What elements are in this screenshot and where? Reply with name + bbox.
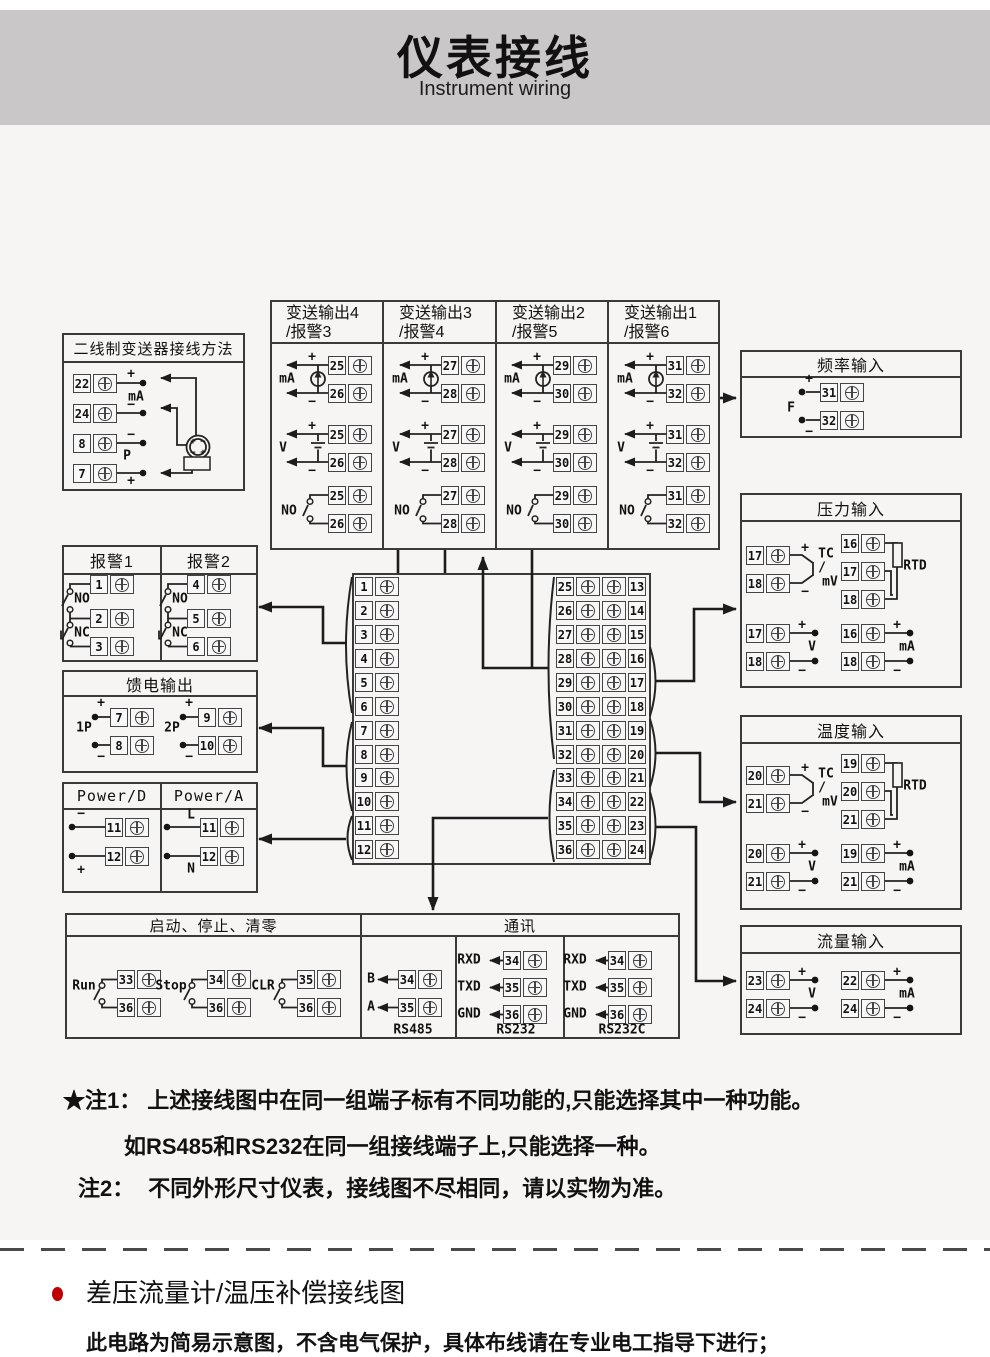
terminal-19: 19 <box>602 721 646 740</box>
label-B: B <box>367 972 375 987</box>
screw-icon <box>628 978 652 997</box>
screw-icon <box>686 453 710 472</box>
label-mA: mA <box>617 372 633 387</box>
terminal-35: 35 <box>398 998 442 1017</box>
terminal-3: 3 <box>355 625 399 644</box>
terminal-36: 36 <box>117 998 161 1017</box>
screw-icon <box>93 374 117 393</box>
label-+: + <box>893 965 901 980</box>
terminal-18: 18 <box>746 574 790 593</box>
terminal-7: 7 <box>110 708 154 727</box>
screw-icon <box>861 754 885 773</box>
terminal-11: 11 <box>105 818 149 837</box>
label-NO: NO <box>172 592 188 607</box>
screw-icon <box>348 514 372 533</box>
label-−: − <box>533 464 541 479</box>
label-−: − <box>893 1011 901 1026</box>
screw-icon <box>628 951 652 970</box>
terminal-32: 32 <box>666 384 710 403</box>
label-GND: GND <box>457 1007 480 1022</box>
note-2: 注2：不同外形尺寸仪表，接线图不尽相同，请以实物为准。 <box>78 1171 676 1203</box>
label-L: L <box>187 808 195 823</box>
screw-icon <box>602 577 626 596</box>
terminal-5: 5 <box>355 673 399 692</box>
terminal-24: 24 <box>841 999 885 1018</box>
label-V: V <box>617 441 625 456</box>
terminal-29: 29 <box>553 425 597 444</box>
screw-icon <box>207 609 231 628</box>
note-1-line2: 如RS485和RS232在同一组接线端子上,只能选择一种。 <box>124 1129 661 1161</box>
terminal-1: 1 <box>355 577 399 596</box>
label-+: + <box>421 419 429 434</box>
label-−: − <box>185 750 193 765</box>
screw-icon <box>375 649 399 668</box>
screw-icon <box>375 625 399 644</box>
terminal-2: 2 <box>355 601 399 620</box>
label-−: − <box>308 464 316 479</box>
label-NO: NO <box>394 504 410 519</box>
screw-icon <box>766 652 790 671</box>
label-mV: mV <box>822 575 838 590</box>
screw-icon <box>110 637 134 656</box>
label-+: + <box>798 965 806 980</box>
screw-icon <box>861 872 885 891</box>
note-1: ★注1：上述接线图中在同一组端子标有不同功能的,只能选择其中一种功能。 <box>63 1083 813 1115</box>
screw-icon <box>861 590 885 609</box>
terminal-12: 12 <box>355 840 399 859</box>
label-TC: TC <box>818 547 834 562</box>
dashed-divider <box>0 1248 990 1251</box>
label-RXD: RXD <box>563 953 586 968</box>
label-NO: NO <box>506 504 522 519</box>
page-subtitle: Instrument wiring <box>0 78 990 101</box>
screw-icon <box>628 1005 652 1024</box>
screw-icon <box>573 425 597 444</box>
screw-icon <box>130 708 154 727</box>
label-−: − <box>77 807 85 822</box>
terminal-16: 16 <box>841 624 885 643</box>
label-1P: 1P <box>76 721 92 736</box>
screw-icon <box>602 745 626 764</box>
label-−: − <box>798 664 806 679</box>
terminal-28: 28 <box>556 649 600 668</box>
screw-icon <box>840 411 864 430</box>
label-TXD: TXD <box>457 980 480 995</box>
red-bullet-icon <box>52 1287 63 1301</box>
screw-icon <box>576 745 600 764</box>
terminal-31: 31 <box>820 383 864 402</box>
terminal-30: 30 <box>553 514 597 533</box>
terminal-30: 30 <box>553 453 597 472</box>
label-GND: GND <box>563 1007 586 1022</box>
label-mA: mA <box>279 372 295 387</box>
terminal-22: 22 <box>73 374 117 393</box>
screw-icon <box>461 425 485 444</box>
terminal-8: 8 <box>355 745 399 764</box>
terminal-22: 22 <box>602 792 646 811</box>
label-Run: Run <box>72 979 95 994</box>
screw-icon <box>686 425 710 444</box>
terminal-7: 7 <box>73 464 117 483</box>
terminal-32: 32 <box>820 411 864 430</box>
screw-icon <box>766 624 790 643</box>
label-+: + <box>798 838 806 853</box>
screw-icon <box>375 697 399 716</box>
label-RTD: RTD <box>903 779 926 794</box>
terminal-9: 9 <box>355 768 399 787</box>
rtd-resistor-icon <box>893 763 902 787</box>
screw-icon <box>602 601 626 620</box>
terminal-24: 24 <box>746 999 790 1018</box>
content: 二线制变送器接线方法 变送输出4 /报警3 变送输出3 /报警4 变送输出2 /… <box>0 125 990 1240</box>
terminal-21: 21 <box>841 810 885 829</box>
label-−: − <box>801 805 809 820</box>
screw-icon <box>110 609 134 628</box>
label-−: − <box>801 585 809 600</box>
screw-icon <box>418 970 442 989</box>
screw-icon <box>576 816 600 835</box>
terminal-20: 20 <box>746 844 790 863</box>
screw-icon <box>686 356 710 375</box>
terminal-33: 33 <box>556 768 600 787</box>
label-P: P <box>123 449 131 464</box>
screw-icon <box>686 486 710 505</box>
terminal-20: 20 <box>841 782 885 801</box>
terminal-35: 35 <box>503 978 547 997</box>
terminal-35: 35 <box>608 978 652 997</box>
screw-icon <box>861 844 885 863</box>
label-+: + <box>646 350 654 365</box>
screw-icon <box>576 697 600 716</box>
section-body: 此电路为简易示意图，不含电气保护，具体布线请在专业电工指导下进行； <box>86 1327 779 1357</box>
label-NC: NC <box>74 626 90 641</box>
screw-icon <box>93 404 117 423</box>
terminal-18: 18 <box>746 652 790 671</box>
terminal-27: 27 <box>556 625 600 644</box>
label-/: / <box>818 561 826 576</box>
screw-icon <box>861 810 885 829</box>
terminal-28: 28 <box>441 384 485 403</box>
label-+: + <box>185 696 193 711</box>
terminal-25: 25 <box>328 486 372 505</box>
screw-icon <box>348 486 372 505</box>
label-−: − <box>533 395 541 410</box>
label-Stop: Stop <box>155 979 186 994</box>
terminal-31: 31 <box>666 356 710 375</box>
label-+: + <box>421 350 429 365</box>
label-mA: mA <box>504 372 520 387</box>
terminal-34: 34 <box>207 970 251 989</box>
note-1-prefix: ★注1： <box>63 1088 141 1113</box>
label-−: − <box>798 884 806 899</box>
terminal-27: 27 <box>441 425 485 444</box>
terminal-6: 6 <box>355 697 399 716</box>
diagram: 二线制变送器接线方法 变送输出4 /报警3 变送输出3 /报警4 变送输出2 /… <box>0 125 990 1065</box>
label-mA: mA <box>899 860 915 875</box>
label-+: + <box>805 372 813 387</box>
screw-icon <box>602 721 626 740</box>
terminal-21: 21 <box>746 794 790 813</box>
note-2-prefix: 注2： <box>78 1176 134 1201</box>
terminal-12: 12 <box>105 847 149 866</box>
screw-icon <box>576 625 600 644</box>
label-−: − <box>646 395 654 410</box>
screw-icon <box>220 847 244 866</box>
label-−: − <box>200 437 205 447</box>
terminal-21: 21 <box>746 872 790 891</box>
label-−: − <box>97 750 105 765</box>
screw-icon <box>461 486 485 505</box>
label-+: + <box>308 419 316 434</box>
label-F: F <box>787 401 795 416</box>
terminal-36: 36 <box>503 1005 547 1024</box>
screw-icon <box>602 673 626 692</box>
page-header: 仪表接线 Instrument wiring <box>0 10 990 125</box>
terminal-18: 18 <box>841 652 885 671</box>
terminal-32: 32 <box>666 453 710 472</box>
terminal-7: 7 <box>355 721 399 740</box>
terminal-25: 25 <box>328 425 372 444</box>
terminal-18: 18 <box>841 590 885 609</box>
label-−: − <box>127 398 135 413</box>
screw-icon <box>602 649 626 668</box>
screw-icon <box>686 384 710 403</box>
note-2-text: 不同外形尺寸仪表，接线图不尽相同，请以实物为准。 <box>148 1176 676 1201</box>
terminal-20: 20 <box>746 766 790 785</box>
connector-lines <box>398 550 532 668</box>
label-+: + <box>97 696 105 711</box>
screw-icon <box>93 434 117 453</box>
terminal-27: 27 <box>441 356 485 375</box>
label-+: + <box>533 350 541 365</box>
terminal-19: 19 <box>841 844 885 863</box>
screw-icon <box>576 840 600 859</box>
label-+: + <box>533 419 541 434</box>
terminal-31: 31 <box>666 425 710 444</box>
terminal-26: 26 <box>328 514 372 533</box>
terminal-36: 36 <box>297 998 341 1017</box>
screw-icon <box>861 624 885 643</box>
label-A: A <box>367 1000 375 1015</box>
screw-icon <box>461 356 485 375</box>
screw-icon <box>227 970 251 989</box>
terminal-13: 13 <box>602 577 646 596</box>
screw-icon <box>218 708 242 727</box>
label-mA: mA <box>392 372 408 387</box>
label-−: − <box>127 428 135 443</box>
terminal-24: 24 <box>602 840 646 859</box>
screw-icon <box>766 999 790 1018</box>
terminal-18: 18 <box>602 697 646 716</box>
screw-icon <box>375 745 399 764</box>
terminal-34: 34 <box>556 792 600 811</box>
label-−: − <box>421 464 429 479</box>
screw-icon <box>207 575 231 594</box>
screw-icon <box>418 998 442 1017</box>
terminal-26: 26 <box>328 453 372 472</box>
terminal-22: 22 <box>841 971 885 990</box>
terminal-10: 10 <box>198 736 242 755</box>
terminal-30: 30 <box>553 384 597 403</box>
screw-icon <box>602 697 626 716</box>
screw-icon <box>861 534 885 553</box>
screw-icon <box>861 562 885 581</box>
terminal-17: 17 <box>602 673 646 692</box>
terminal-31: 31 <box>666 486 710 505</box>
terminal-10: 10 <box>355 792 399 811</box>
terminal-36: 36 <box>207 998 251 1017</box>
terminal-4: 4 <box>355 649 399 668</box>
screw-icon <box>137 998 161 1017</box>
label-CLR: CLR <box>251 979 274 994</box>
terminal-29: 29 <box>553 356 597 375</box>
label-V: V <box>392 441 400 456</box>
label-mA: mA <box>899 987 915 1002</box>
label-V: V <box>808 640 816 655</box>
label-V: V <box>808 987 816 1002</box>
screw-icon <box>523 978 547 997</box>
terminal-12: 12 <box>200 847 244 866</box>
screw-icon <box>840 383 864 402</box>
terminal-27: 27 <box>441 486 485 505</box>
screw-icon <box>766 872 790 891</box>
label-RXD: RXD <box>457 953 480 968</box>
label-RS232: RS232 <box>496 1023 535 1038</box>
screw-icon <box>375 673 399 692</box>
screw-icon <box>93 464 117 483</box>
screw-icon <box>461 514 485 533</box>
terminal-36: 36 <box>556 840 600 859</box>
terminal-32: 32 <box>556 745 600 764</box>
screw-icon <box>375 768 399 787</box>
terminal-23: 23 <box>602 816 646 835</box>
label-mA: mA <box>899 640 915 655</box>
screw-icon <box>861 652 885 671</box>
label-+: + <box>190 437 195 447</box>
label-/: / <box>818 781 826 796</box>
screw-icon <box>861 971 885 990</box>
label-−: − <box>421 395 429 410</box>
screw-icon <box>573 356 597 375</box>
terminal-28: 28 <box>441 453 485 472</box>
terminal-26: 26 <box>328 384 372 403</box>
terminal-30: 30 <box>556 697 600 716</box>
terminal-17: 17 <box>746 546 790 565</box>
screw-icon <box>348 425 372 444</box>
label-NO: NO <box>619 504 635 519</box>
label-RS232C: RS232C <box>599 1023 646 1038</box>
terminal-21: 21 <box>602 768 646 787</box>
screw-icon <box>348 453 372 472</box>
screw-icon <box>375 792 399 811</box>
screw-icon <box>130 736 154 755</box>
label-+: + <box>77 863 85 878</box>
screw-icon <box>348 356 372 375</box>
screw-icon <box>602 816 626 835</box>
terminal-6: 6 <box>187 637 231 656</box>
screw-icon <box>220 818 244 837</box>
screw-icon <box>602 840 626 859</box>
terminal-36: 36 <box>608 1005 652 1024</box>
label-N: N <box>187 862 195 877</box>
label-+: + <box>127 474 135 489</box>
screw-icon <box>375 840 399 859</box>
label-mV: mV <box>822 795 838 810</box>
terminal-8: 8 <box>110 736 154 755</box>
screw-icon <box>573 486 597 505</box>
label-+: + <box>893 618 901 633</box>
screw-icon <box>576 768 600 787</box>
screw-icon <box>125 847 149 866</box>
terminal-4: 4 <box>187 575 231 594</box>
screw-icon <box>375 721 399 740</box>
screw-icon <box>576 649 600 668</box>
screw-icon <box>602 792 626 811</box>
terminal-1: 1 <box>90 575 134 594</box>
terminal-19: 19 <box>841 754 885 773</box>
section-heading: 差压流量计/温压补偿接线图 <box>86 1273 405 1310</box>
screw-icon <box>766 546 790 565</box>
screw-icon <box>227 998 251 1017</box>
screw-icon <box>348 384 372 403</box>
label-RTD: RTD <box>903 559 926 574</box>
label-+: + <box>646 419 654 434</box>
terminal-25: 25 <box>556 577 600 596</box>
terminal-11: 11 <box>200 818 244 837</box>
terminal-2: 2 <box>90 609 134 628</box>
terminal-24: 24 <box>73 404 117 423</box>
label-−: − <box>190 448 195 458</box>
label-−: − <box>646 464 654 479</box>
screw-icon <box>576 577 600 596</box>
terminal-15: 15 <box>602 625 646 644</box>
terminal-3: 3 <box>90 637 134 656</box>
terminal-17: 17 <box>841 562 885 581</box>
screw-icon <box>573 453 597 472</box>
terminal-20: 20 <box>602 745 646 764</box>
terminal-8: 8 <box>73 434 117 453</box>
screw-icon <box>375 577 399 596</box>
screw-icon <box>461 453 485 472</box>
label-−: − <box>893 664 901 679</box>
screw-icon <box>317 998 341 1017</box>
terminal-29: 29 <box>556 673 600 692</box>
label-+: + <box>801 761 809 776</box>
label-V: V <box>504 441 512 456</box>
screw-icon <box>110 575 134 594</box>
label-RS485: RS485 <box>393 1023 432 1038</box>
terminal-34: 34 <box>398 970 442 989</box>
terminal-28: 28 <box>441 514 485 533</box>
terminal-14: 14 <box>602 601 646 620</box>
screw-icon <box>766 766 790 785</box>
terminal-16: 16 <box>602 649 646 668</box>
screw-icon <box>461 384 485 403</box>
screw-icon <box>523 951 547 970</box>
terminal-23: 23 <box>746 971 790 990</box>
label-TC: TC <box>818 767 834 782</box>
rtd-resistor-icon <box>893 543 902 567</box>
terminal-26: 26 <box>556 601 600 620</box>
terminal-35: 35 <box>297 970 341 989</box>
screw-icon <box>523 1005 547 1024</box>
terminal-31: 31 <box>556 721 600 740</box>
screw-icon <box>576 721 600 740</box>
terminal-29: 29 <box>553 486 597 505</box>
screw-icon <box>573 384 597 403</box>
screw-icon <box>861 782 885 801</box>
screw-icon <box>573 514 597 533</box>
